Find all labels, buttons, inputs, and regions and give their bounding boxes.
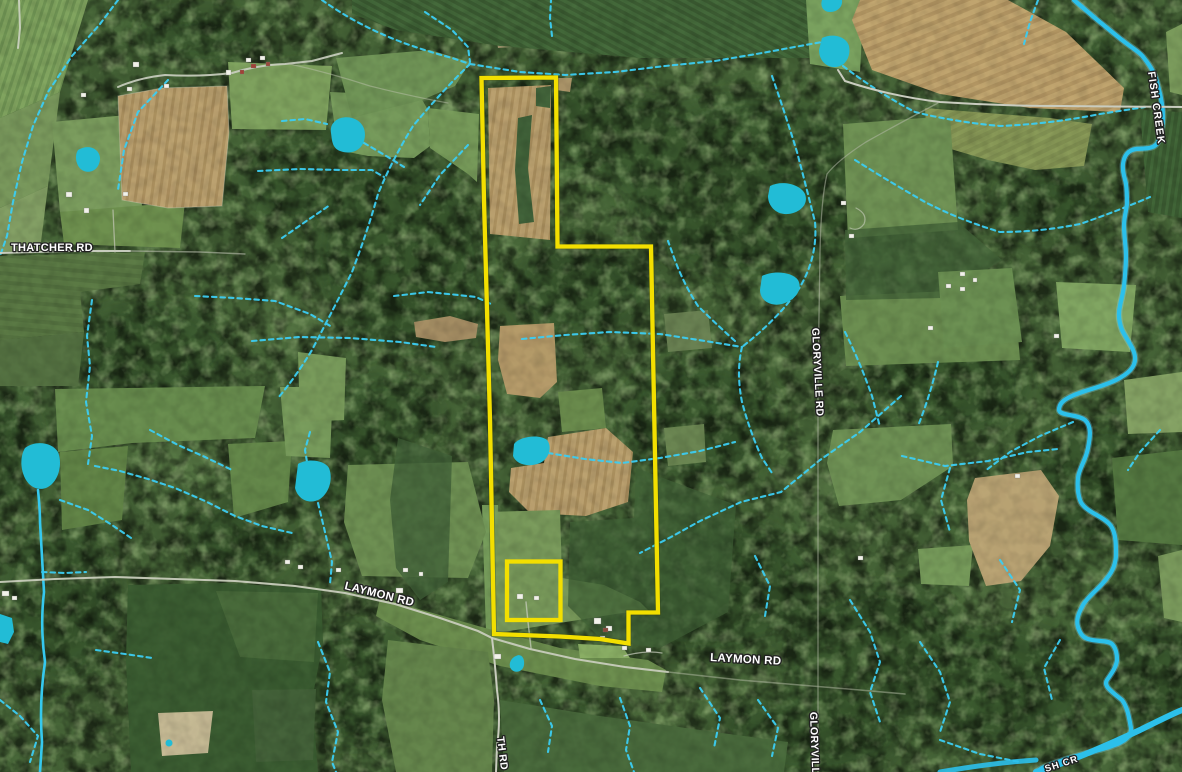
svg-text:THATCHER RD: THATCHER RD [11,242,93,254]
svg-text:GLORYVILLE RD: GLORYVILLE RD [807,712,822,772]
